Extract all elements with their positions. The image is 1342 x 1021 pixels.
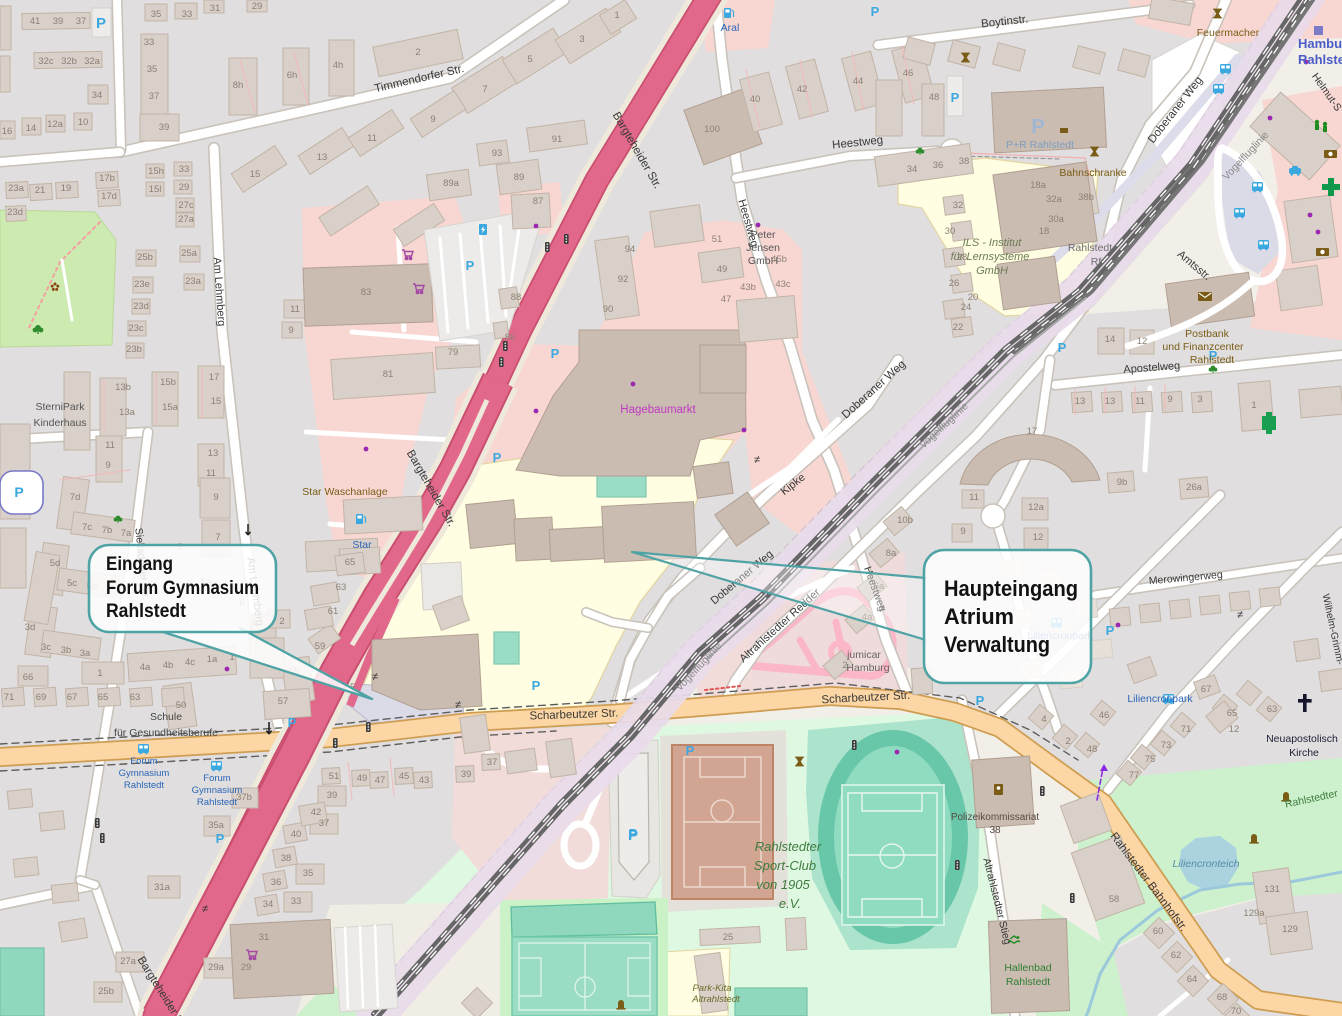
svg-text:1a: 1a: [207, 654, 218, 665]
svg-text:63: 63: [1267, 704, 1278, 715]
svg-text:11: 11: [290, 304, 300, 315]
svg-text:P: P: [629, 826, 638, 841]
svg-text:Rahlstedt: Rahlstedt: [1006, 976, 1050, 988]
svg-text:17: 17: [1027, 426, 1038, 437]
svg-text:26: 26: [949, 278, 960, 289]
svg-text:5c: 5c: [67, 578, 77, 589]
svg-text:71: 71: [4, 692, 15, 703]
svg-text:36: 36: [271, 877, 282, 888]
svg-text:43b: 43b: [740, 282, 756, 293]
svg-text:18a: 18a: [1030, 180, 1047, 191]
svg-text:39: 39: [461, 769, 472, 780]
svg-text:48: 48: [929, 92, 940, 103]
svg-text:P: P: [288, 715, 297, 730]
svg-text:24: 24: [961, 302, 972, 313]
svg-text:38: 38: [959, 156, 970, 167]
svg-text:29: 29: [252, 1, 263, 12]
svg-text:31: 31: [210, 3, 221, 14]
svg-text:SterniPark: SterniPark: [35, 401, 85, 413]
svg-text:43: 43: [419, 775, 430, 786]
svg-text:Liliencronteich: Liliencronteich: [1172, 858, 1239, 870]
svg-text:12: 12: [1033, 532, 1044, 543]
svg-text:5d: 5d: [50, 558, 61, 569]
svg-text:Peter: Peter: [750, 229, 776, 241]
svg-text:3c: 3c: [41, 642, 51, 653]
svg-text:32: 32: [953, 200, 964, 211]
svg-text:14: 14: [26, 123, 37, 134]
svg-text:79: 79: [448, 347, 459, 358]
svg-text:37: 37: [149, 91, 160, 102]
svg-text:7: 7: [215, 532, 220, 543]
svg-text:Haupteingang: Haupteingang: [944, 576, 1078, 601]
svg-text:37: 37: [76, 16, 87, 27]
svg-text:Gymnasium: Gymnasium: [119, 768, 170, 779]
svg-text:41: 41: [30, 16, 41, 27]
svg-text:9: 9: [1167, 394, 1172, 405]
svg-text:30a: 30a: [1048, 214, 1065, 225]
svg-text:7a: 7a: [121, 528, 132, 539]
svg-text:38: 38: [281, 853, 292, 864]
svg-text:Bahnschranke: Bahnschranke: [1059, 167, 1126, 179]
svg-text:45b: 45b: [771, 254, 787, 265]
svg-text:P: P: [14, 484, 23, 500]
svg-text:4h: 4h: [333, 60, 344, 71]
svg-text:33: 33: [291, 896, 302, 907]
svg-text:für Gesundheitsberufe: für Gesundheitsberufe: [114, 727, 218, 739]
svg-text:11: 11: [1135, 396, 1145, 407]
svg-text:88: 88: [511, 292, 522, 303]
svg-text:83: 83: [361, 287, 372, 298]
svg-text:23e: 23e: [134, 279, 150, 290]
svg-text:11: 11: [367, 133, 377, 144]
svg-text:1: 1: [614, 10, 619, 21]
svg-text:Rahlstedt: Rahlstedt: [124, 780, 164, 791]
svg-text:Kinderhaus: Kinderhaus: [33, 417, 86, 429]
svg-text:9b: 9b: [1117, 477, 1128, 488]
svg-text:63: 63: [130, 692, 141, 703]
svg-text:92: 92: [618, 274, 629, 285]
svg-text:Schule: Schule: [150, 711, 182, 723]
svg-text:≠: ≠: [372, 671, 378, 683]
svg-text:91: 91: [552, 134, 563, 145]
svg-text:63: 63: [336, 582, 347, 593]
svg-text:8a: 8a: [886, 548, 897, 559]
svg-text:131: 131: [1264, 884, 1280, 895]
svg-text:4b: 4b: [163, 660, 174, 671]
svg-text:Star: Star: [352, 539, 372, 551]
svg-text:P: P: [976, 693, 985, 708]
svg-text:34: 34: [263, 899, 274, 910]
svg-text:30: 30: [945, 226, 956, 237]
svg-text:47: 47: [375, 775, 386, 786]
svg-text:3d: 3d: [25, 622, 36, 633]
svg-text:9: 9: [105, 460, 110, 471]
svg-text:17b: 17b: [99, 173, 115, 184]
svg-text:11: 11: [206, 468, 216, 479]
svg-text:49: 49: [717, 264, 728, 275]
svg-text:42: 42: [311, 807, 322, 818]
svg-text:1: 1: [97, 668, 102, 679]
svg-text:P: P: [532, 678, 541, 693]
svg-text:21: 21: [35, 185, 46, 196]
svg-text:23d: 23d: [133, 301, 149, 312]
svg-text:12: 12: [1137, 336, 1148, 347]
svg-text:Neuapostolisch: Neuapostolisch: [1266, 733, 1338, 745]
svg-text:42: 42: [797, 84, 808, 95]
svg-text:73: 73: [1161, 740, 1172, 751]
svg-text:51: 51: [712, 234, 723, 245]
svg-text:9: 9: [430, 114, 435, 125]
svg-text:90: 90: [603, 304, 614, 315]
svg-text:P: P: [96, 15, 106, 32]
svg-text:25: 25: [723, 932, 734, 943]
svg-text:129: 129: [1282, 924, 1298, 935]
svg-text:Rahlsted: Rahlsted: [1298, 52, 1342, 67]
svg-text:43c: 43c: [775, 279, 791, 290]
svg-text:Forum: Forum: [203, 773, 231, 784]
svg-text:≠: ≠: [754, 454, 760, 466]
svg-text:3: 3: [1197, 394, 1202, 405]
svg-text:29a: 29a: [208, 962, 225, 973]
svg-text:37: 37: [487, 757, 498, 768]
svg-text:39: 39: [159, 122, 170, 133]
svg-text:67: 67: [67, 692, 78, 703]
svg-text:68: 68: [1217, 992, 1228, 1003]
svg-text:15: 15: [250, 169, 261, 180]
svg-text:3: 3: [579, 34, 584, 45]
svg-text:12: 12: [1229, 724, 1240, 735]
svg-text:46: 46: [903, 68, 914, 79]
svg-text:27a: 27a: [120, 956, 137, 967]
svg-text:Rahlstedt: Rahlstedt: [197, 797, 237, 808]
svg-text:23a: 23a: [8, 183, 25, 194]
svg-text:64: 64: [1187, 974, 1198, 985]
svg-text:Hallenbad: Hallenbad: [1004, 962, 1051, 974]
svg-text:32c: 32c: [38, 56, 54, 67]
svg-text:2: 2: [415, 47, 420, 58]
svg-text:9: 9: [213, 492, 218, 503]
svg-text:25b: 25b: [137, 252, 153, 263]
svg-text:5: 5: [527, 54, 532, 65]
svg-text:P: P: [1058, 340, 1067, 355]
svg-text:6h: 6h: [287, 70, 298, 81]
svg-text:e.V.: e.V.: [779, 896, 801, 911]
svg-text:51: 51: [329, 771, 340, 782]
svg-text:23a: 23a: [185, 276, 202, 287]
svg-text:23d: 23d: [7, 207, 23, 218]
svg-text:13: 13: [317, 152, 328, 163]
svg-text:2: 2: [842, 660, 847, 671]
svg-text:4c: 4c: [185, 657, 195, 668]
svg-text:Polizeikommissariat: Polizeikommissariat: [951, 812, 1040, 823]
svg-text:93: 93: [492, 148, 503, 159]
svg-text:38: 38: [989, 825, 1001, 836]
svg-text:Rahlstedt: Rahlstedt: [106, 600, 186, 622]
svg-text:Liliencronpark: Liliencronpark: [1127, 693, 1193, 705]
svg-text:P: P: [951, 90, 960, 105]
svg-text:11: 11: [105, 440, 115, 451]
svg-text:≠: ≠: [1237, 609, 1243, 621]
svg-text:Eingang: Eingang: [106, 553, 173, 575]
svg-text:15l: 15l: [149, 184, 162, 195]
svg-text:31: 31: [259, 932, 270, 943]
svg-text:3a: 3a: [80, 648, 91, 659]
svg-text:11: 11: [969, 492, 979, 503]
svg-text:35: 35: [151, 9, 162, 20]
svg-text:25a: 25a: [181, 248, 198, 259]
svg-text:13a: 13a: [119, 407, 136, 418]
svg-text:12a: 12a: [47, 119, 64, 130]
svg-text:75: 75: [1145, 754, 1156, 765]
svg-text:23b: 23b: [126, 344, 142, 355]
svg-text:Gymnasium: Gymnasium: [192, 785, 243, 796]
svg-text:Verwaltung: Verwaltung: [944, 632, 1050, 657]
svg-text:36: 36: [933, 160, 944, 171]
svg-text:1: 1: [1251, 400, 1256, 411]
svg-text:23c: 23c: [128, 323, 144, 334]
svg-text:29: 29: [241, 962, 252, 973]
svg-text:10b: 10b: [897, 515, 913, 526]
svg-text:2: 2: [1065, 736, 1070, 747]
svg-text:Forum Gymnasium: Forum Gymnasium: [106, 577, 259, 599]
svg-text:≠: ≠: [202, 903, 208, 915]
svg-text:19: 19: [61, 183, 72, 194]
svg-text:89: 89: [514, 172, 525, 183]
svg-text:37: 37: [319, 818, 330, 829]
svg-text:94: 94: [625, 244, 636, 255]
svg-text:Kirche: Kirche: [1289, 747, 1319, 759]
svg-text:27a: 27a: [178, 214, 195, 225]
svg-text:von 1905: von 1905: [756, 877, 810, 892]
svg-text:P: P: [686, 743, 695, 758]
svg-text:44: 44: [853, 76, 864, 87]
svg-text:15h: 15h: [148, 166, 164, 177]
svg-text:10: 10: [78, 117, 89, 128]
svg-text:129a: 129a: [1243, 908, 1265, 919]
svg-text:27c: 27c: [178, 200, 194, 211]
svg-text:13: 13: [1105, 396, 1116, 407]
svg-text:7c: 7c: [82, 522, 92, 533]
svg-text:4: 4: [1041, 714, 1046, 725]
svg-text:9: 9: [288, 325, 293, 336]
svg-text:28: 28: [957, 252, 968, 263]
svg-text:45: 45: [399, 771, 410, 782]
svg-text:35: 35: [303, 868, 314, 879]
svg-text:P: P: [466, 258, 475, 273]
svg-text:33: 33: [182, 9, 193, 20]
svg-text:13: 13: [208, 448, 219, 459]
svg-text:61: 61: [328, 606, 339, 617]
svg-text:71: 71: [1181, 724, 1192, 735]
svg-text:P: P: [551, 346, 560, 361]
svg-text:P: P: [493, 450, 502, 465]
svg-text:15: 15: [211, 396, 222, 407]
svg-text:40: 40: [291, 829, 302, 840]
svg-text:32b: 32b: [61, 56, 77, 67]
svg-text:P: P: [1031, 116, 1044, 138]
svg-text:Hagebaumarkt: Hagebaumarkt: [620, 404, 696, 416]
svg-text:Aral: Aral: [721, 22, 740, 34]
svg-text:39: 39: [327, 790, 338, 801]
svg-text:P: P: [871, 4, 880, 19]
svg-text:Rahlstedter: Rahlstedter: [755, 839, 822, 854]
svg-text:17d: 17d: [101, 191, 117, 202]
svg-text:35: 35: [147, 64, 158, 75]
svg-text:Atrium: Atrium: [944, 604, 1014, 629]
svg-text:Jensen: Jensen: [746, 242, 780, 254]
svg-text:32a: 32a: [84, 56, 101, 67]
svg-text:Star Waschanlage: Star Waschanlage: [302, 486, 388, 498]
svg-text:7d: 7d: [70, 492, 81, 503]
svg-text:46: 46: [1099, 710, 1110, 721]
svg-text:Feuermacher: Feuermacher: [1197, 27, 1260, 39]
svg-text:Altrahlstedt: Altrahlstedt: [691, 994, 740, 1005]
svg-text:50: 50: [176, 700, 187, 711]
svg-text:7b: 7b: [102, 525, 113, 536]
svg-text:Hamburg: Hamburg: [846, 662, 889, 674]
svg-text:70: 70: [1231, 1006, 1242, 1016]
svg-text:48: 48: [1087, 744, 1098, 755]
svg-text:9: 9: [960, 526, 965, 537]
svg-text:3b: 3b: [61, 645, 72, 656]
svg-text:26a: 26a: [1186, 482, 1203, 493]
svg-text:33: 33: [179, 164, 190, 175]
svg-text:69: 69: [36, 692, 47, 703]
svg-text:15a: 15a: [162, 402, 179, 413]
svg-text:Forum: Forum: [130, 756, 158, 767]
svg-text:65: 65: [98, 692, 109, 703]
svg-text:22: 22: [953, 322, 964, 333]
svg-text:25b: 25b: [98, 986, 114, 997]
svg-text:65: 65: [345, 557, 356, 568]
svg-text:38b: 38b: [1078, 192, 1094, 203]
svg-text:P+R Rahlstedt: P+R Rahlstedt: [1006, 139, 1074, 151]
svg-text:17: 17: [209, 372, 220, 383]
svg-text:77: 77: [1129, 770, 1140, 781]
svg-text:57: 57: [278, 696, 289, 707]
svg-text:4a: 4a: [140, 662, 151, 673]
svg-text:67: 67: [1201, 684, 1212, 695]
svg-text:33: 33: [144, 37, 155, 48]
svg-text:89a: 89a: [443, 178, 460, 189]
svg-text:15b: 15b: [160, 377, 176, 388]
svg-text:59: 59: [315, 641, 326, 652]
svg-text:P: P: [216, 831, 225, 846]
svg-text:37b: 37b: [236, 792, 252, 803]
svg-text:Hamburg: Hamburg: [1298, 36, 1342, 51]
svg-text:65: 65: [1227, 708, 1238, 719]
svg-text:13: 13: [1075, 396, 1086, 407]
svg-text:35a: 35a: [208, 820, 225, 831]
svg-text:jumicar: jumicar: [846, 649, 881, 661]
svg-text:58: 58: [1109, 894, 1120, 905]
svg-text:13b: 13b: [115, 382, 131, 393]
svg-text:49: 49: [357, 773, 368, 784]
svg-text:20: 20: [968, 292, 979, 303]
svg-text:Rf: Rf: [1091, 256, 1102, 268]
svg-text:32a: 32a: [1046, 194, 1063, 205]
svg-text:14: 14: [1105, 334, 1116, 345]
svg-text:29: 29: [179, 182, 190, 193]
svg-text:81: 81: [383, 369, 394, 380]
svg-text:≠: ≠: [455, 699, 461, 711]
svg-text:Park-Kita: Park-Kita: [692, 983, 731, 994]
svg-text:47: 47: [721, 294, 732, 305]
svg-text:40: 40: [750, 94, 761, 105]
svg-text:86: 86: [505, 332, 516, 343]
svg-text:39: 39: [53, 16, 64, 27]
svg-text:Rahlstedt: Rahlstedt: [1190, 354, 1234, 366]
svg-text:60: 60: [1153, 926, 1164, 937]
svg-text:62: 62: [1171, 950, 1182, 961]
svg-text:66: 66: [23, 672, 34, 683]
svg-text:P: P: [1106, 623, 1115, 638]
svg-text:34: 34: [92, 90, 103, 101]
svg-text:18: 18: [1039, 226, 1050, 237]
svg-text:ILS - Institut: ILS - Institut: [963, 237, 1023, 249]
svg-text:und Finanzcenter: und Finanzcenter: [1162, 341, 1244, 353]
svg-text:31a: 31a: [154, 882, 171, 893]
svg-text:Postbank: Postbank: [1185, 328, 1230, 340]
svg-text:Sport-Club: Sport-Club: [754, 858, 816, 873]
svg-text:16: 16: [2, 126, 13, 137]
svg-text:34: 34: [907, 164, 918, 175]
svg-text:2: 2: [279, 616, 284, 627]
svg-text:87: 87: [533, 196, 544, 207]
svg-text:8h: 8h: [233, 80, 244, 91]
svg-text:7: 7: [482, 84, 487, 95]
svg-text:GmbH: GmbH: [976, 265, 1008, 277]
svg-text:Rahlstedt: Rahlstedt: [1068, 242, 1112, 254]
svg-text:12a: 12a: [1028, 502, 1045, 513]
svg-text:100: 100: [704, 124, 720, 135]
